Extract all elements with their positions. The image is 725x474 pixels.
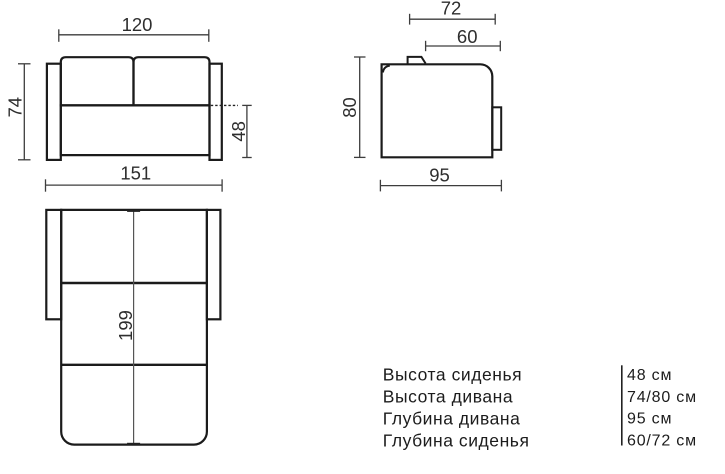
svg-text:60/72 см: 60/72 см <box>627 432 697 449</box>
svg-text:60: 60 <box>457 26 478 47</box>
svg-text:120: 120 <box>122 14 153 35</box>
svg-text:95: 95 <box>429 165 450 186</box>
svg-text:74: 74 <box>4 97 25 118</box>
svg-text:Глубина дивана: Глубина дивана <box>383 409 521 429</box>
svg-text:Высота сиденья: Высота сиденья <box>383 365 522 385</box>
svg-text:199: 199 <box>115 310 136 341</box>
svg-text:Глубина сиденья: Глубина сиденья <box>383 431 530 451</box>
svg-text:151: 151 <box>120 162 151 183</box>
svg-text:Высота дивана: Высота дивана <box>383 387 513 407</box>
svg-text:74/80 см: 74/80 см <box>627 389 697 406</box>
svg-text:48 см: 48 см <box>627 367 672 384</box>
svg-text:80: 80 <box>339 97 360 118</box>
svg-text:95 см: 95 см <box>627 411 672 428</box>
svg-text:48: 48 <box>228 121 249 142</box>
svg-text:72: 72 <box>441 0 462 19</box>
